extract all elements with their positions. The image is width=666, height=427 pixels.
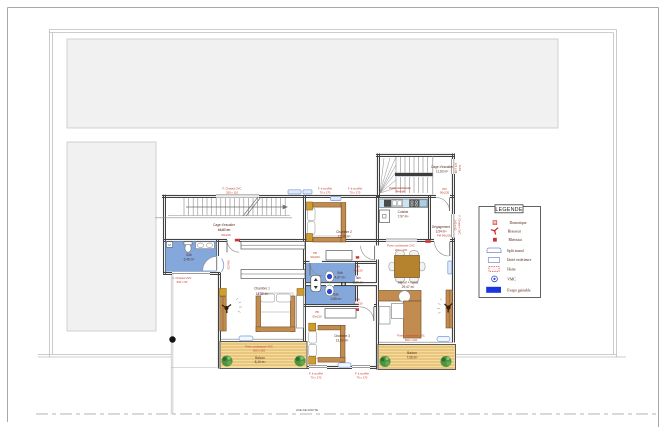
svg-text:Hotte: Hotte xyxy=(507,268,516,272)
svg-text:13,80 m²: 13,80 m² xyxy=(256,292,269,296)
svg-text:Sdb: Sdb xyxy=(337,271,343,275)
svg-text:LEGENDE: LEGENDE xyxy=(495,207,522,213)
svg-text:Porte coulissante 2VC: Porte coulissante 2VC xyxy=(397,334,425,338)
svg-text:4,67 m²: 4,67 m² xyxy=(335,276,346,280)
svg-text:0,85 m²: 0,85 m² xyxy=(331,297,342,301)
svg-text:500 x 60: 500 x 60 xyxy=(177,280,188,284)
svg-text:11,63 m²: 11,63 m² xyxy=(436,170,448,174)
svg-text:Chambre 2: Chambre 2 xyxy=(336,230,352,234)
svg-text:13,36 m²: 13,36 m² xyxy=(338,235,351,239)
svg-text:121 x 98: 121 x 98 xyxy=(454,163,458,174)
svg-text:44,87 m²: 44,87 m² xyxy=(218,228,231,232)
svg-text:Porte coulissante 2VC: Porte coulissante 2VC xyxy=(387,244,415,248)
svg-text:76 x 19: 76 x 19 xyxy=(395,190,405,194)
svg-text:Cage d'escalier: Cage d'escalier xyxy=(431,165,454,169)
svg-text:Sde: Sde xyxy=(333,293,339,297)
svg-text:70 x 170: 70 x 170 xyxy=(357,376,368,380)
svg-text:Balcon: Balcon xyxy=(407,351,417,355)
svg-text:250 x 110: 250 x 110 xyxy=(226,191,239,195)
svg-text:90x220: 90x220 xyxy=(227,260,231,270)
svg-text:5,46 m²: 5,46 m² xyxy=(184,258,195,262)
svg-text:90x220: 90x220 xyxy=(312,315,322,319)
svg-text:Tsln: Tsln xyxy=(355,276,361,280)
svg-text:70 x 170: 70 x 170 xyxy=(350,191,361,195)
svg-text:Dégagement: Dégagement xyxy=(432,225,450,229)
svg-text:Unité extérieure: Unité extérieure xyxy=(507,258,532,262)
svg-text:Chambre 3: Chambre 3 xyxy=(334,334,350,338)
svg-text:70 x 170: 70 x 170 xyxy=(311,376,322,380)
svg-text:29,47 m²: 29,47 m² xyxy=(402,285,415,289)
svg-text:PM 90x220: PM 90x220 xyxy=(437,234,452,238)
svg-text:Cage d'escalier: Cage d'escalier xyxy=(213,223,236,227)
svg-text:500 x 220: 500 x 220 xyxy=(253,349,266,353)
svg-text:Brasseur: Brasseur xyxy=(508,229,522,233)
svg-text:Split mural: Split mural xyxy=(507,249,524,253)
svg-text:Sdb: Sdb xyxy=(186,253,192,257)
svg-text:Domotique: Domotique xyxy=(510,221,527,225)
svg-text:140 x 60: 140 x 60 xyxy=(454,220,458,231)
svg-text:VMC: VMC xyxy=(507,277,516,281)
svg-text:500 x 220: 500 x 220 xyxy=(405,338,418,342)
svg-text:3,20 m²: 3,20 m² xyxy=(353,281,364,285)
svg-text:Séjour + repas: Séjour + repas xyxy=(398,281,419,285)
svg-text:Chambre 1: Chambre 1 xyxy=(254,287,270,291)
svg-text:13,02 m²: 13,02 m² xyxy=(336,339,349,343)
svg-text:90x220: 90x220 xyxy=(353,302,363,306)
svg-text:90x220: 90x220 xyxy=(221,233,231,237)
svg-text:7,97 m²: 7,97 m² xyxy=(398,215,409,219)
svg-text:AXE DE ROUTE: AXE DE ROUTE xyxy=(296,408,318,412)
svg-text:Evapo gainable: Evapo gainable xyxy=(507,289,531,293)
svg-text:Rhéostat: Rhéostat xyxy=(509,238,523,242)
svg-text:PB: PB xyxy=(315,310,319,314)
svg-text:90x220: 90x220 xyxy=(353,269,363,273)
svg-text:90x220: 90x220 xyxy=(440,191,450,195)
svg-text:8,10 m²: 8,10 m² xyxy=(255,360,266,364)
svg-text:7,06 m²: 7,06 m² xyxy=(407,356,418,360)
svg-text:90x220: 90x220 xyxy=(310,255,320,259)
svg-text:70 x 170: 70 x 170 xyxy=(320,191,331,195)
svg-text:Cuisine: Cuisine xyxy=(398,210,409,214)
